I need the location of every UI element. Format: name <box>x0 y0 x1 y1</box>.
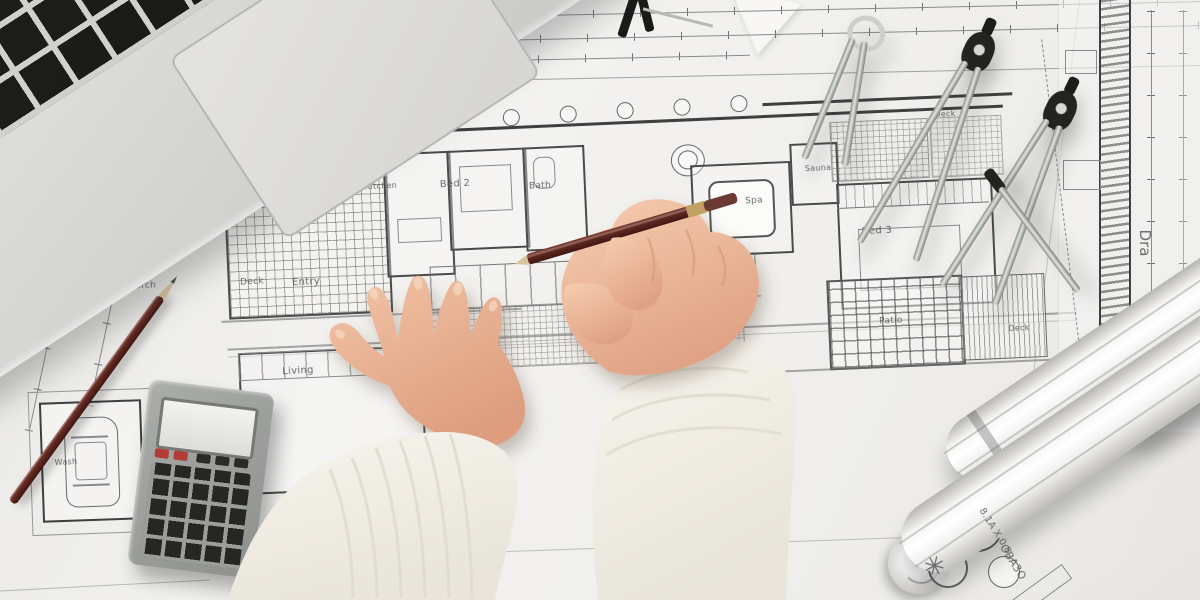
left-hand <box>330 276 525 447</box>
hands-overlay <box>0 0 1200 600</box>
right-sleeve <box>593 339 796 600</box>
left-sleeve-cuff <box>228 432 517 600</box>
architect-workspace-photo: PorchDeckEntryLivingWashKitchenBed 2Bath… <box>0 0 1200 600</box>
